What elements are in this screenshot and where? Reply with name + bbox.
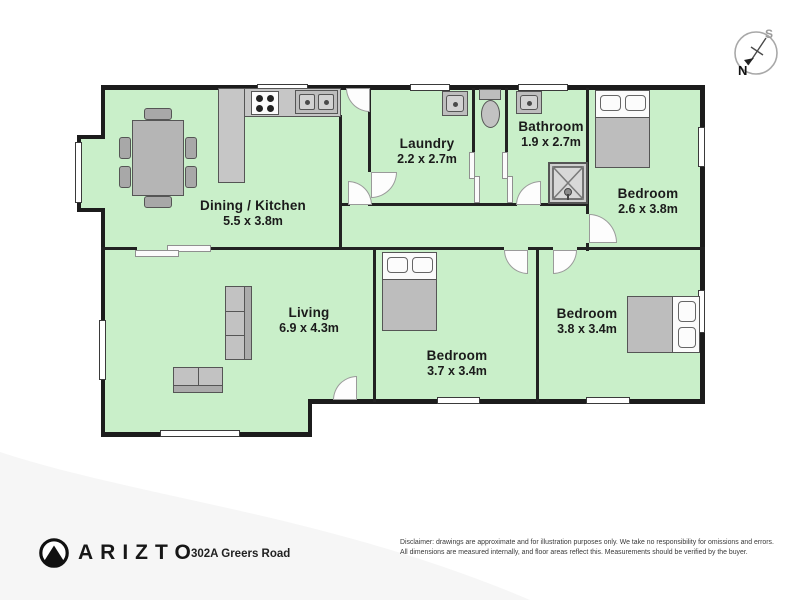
compass-icon: S N (725, 22, 787, 84)
window-living-left (99, 320, 106, 380)
window-laundry-top (410, 84, 450, 91)
bed-bedroom2 (382, 252, 437, 330)
sliding-door-wc-right-panel-1 (502, 152, 508, 179)
compass-north-label: N (738, 63, 747, 78)
room-label-living: Living 6.9 x 4.3m (279, 305, 339, 335)
dining-chair (144, 196, 172, 208)
sliding-door-wc-right-panel-2 (507, 176, 513, 203)
dining-chair (119, 137, 131, 159)
shower-icon (548, 162, 588, 204)
dining-table (132, 120, 184, 196)
room-label-laundry: Laundry 2.2 x 2.7m (397, 136, 457, 166)
wall-exterior-left-upper (101, 85, 105, 139)
room-label-bedroom2: Bedroom 3.7 x 3.4m (427, 348, 488, 378)
wall-hall-top-b (371, 203, 517, 206)
stove-icon (251, 91, 279, 115)
laundry-tub-icon (442, 91, 468, 116)
toilet-tank-icon (479, 89, 501, 100)
arizto-logo-icon (38, 537, 70, 569)
compass-south-label: S (765, 27, 773, 41)
bed-bedroom1 (595, 90, 650, 167)
window-bedroom1-right (698, 127, 705, 167)
floor-plan-canvas: Dining / Kitchen 5.5 x 3.8m Laundry 2.2 … (0, 0, 800, 600)
wall-wc-right (505, 88, 508, 160)
sliding-door-wc-left-panel-2 (474, 176, 480, 203)
window-bedroom3-bottom (586, 397, 630, 404)
window-bay-left (75, 142, 82, 203)
wall-mid-d (577, 247, 705, 250)
dining-chair (185, 166, 197, 188)
wall-mid-a (101, 247, 137, 250)
brand-name: ARIZTO (78, 541, 198, 565)
window-bedroom2-bottom (437, 397, 480, 404)
sofa-three-seat (225, 286, 252, 360)
wall-mid-c (528, 247, 553, 250)
sliding-door-wc-left-panel-1 (469, 152, 475, 179)
wall-living-bedroom2 (373, 247, 376, 402)
window-bathroom-top (518, 84, 568, 91)
dining-chair (144, 108, 172, 120)
property-address: 302A Greers Road (191, 548, 290, 560)
wall-exterior-bottom-right (308, 399, 705, 404)
toilet-bowl-icon (481, 100, 500, 128)
bed-bedroom3 (627, 296, 700, 353)
bathroom-sink-icon (516, 91, 542, 114)
disclaimer-line-2: All dimensions are measured internally, … (400, 548, 792, 558)
dining-chair (185, 137, 197, 159)
wall-vestibule-left (339, 115, 342, 250)
disclaimer-line-1: Disclaimer: drawings are approximate and… (400, 538, 792, 548)
kitchen-sink-icon (295, 90, 338, 114)
kitchen-counter-leg (218, 88, 245, 183)
dining-chair (119, 166, 131, 188)
sliding-door-living-panel-2 (135, 250, 179, 257)
wall-mid-b (210, 247, 504, 250)
wall-bedroom2-bedroom3 (536, 247, 539, 402)
room-label-dining-kitchen: Dining / Kitchen 5.5 x 3.8m (200, 198, 306, 228)
room-label-bathroom: Bathroom 1.9 x 2.7m (518, 119, 583, 149)
room-label-bedroom3: Bedroom 3.8 x 3.4m (557, 306, 618, 336)
sofa-two-seat (173, 367, 223, 393)
wall-bay-top (77, 135, 105, 139)
room-label-bedroom1: Bedroom 2.6 x 3.8m (618, 186, 679, 216)
disclaimer-text: Disclaimer: drawings are approximate and… (400, 538, 792, 558)
window-living-bottom (160, 430, 240, 437)
wall-wc-left (472, 88, 475, 160)
wall-bay-bottom (77, 208, 105, 212)
